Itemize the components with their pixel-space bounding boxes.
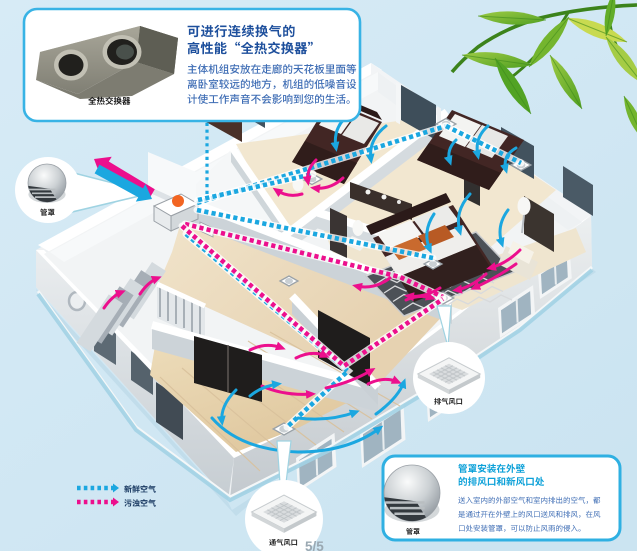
svg-text:5/5: 5/5 <box>305 539 324 551</box>
